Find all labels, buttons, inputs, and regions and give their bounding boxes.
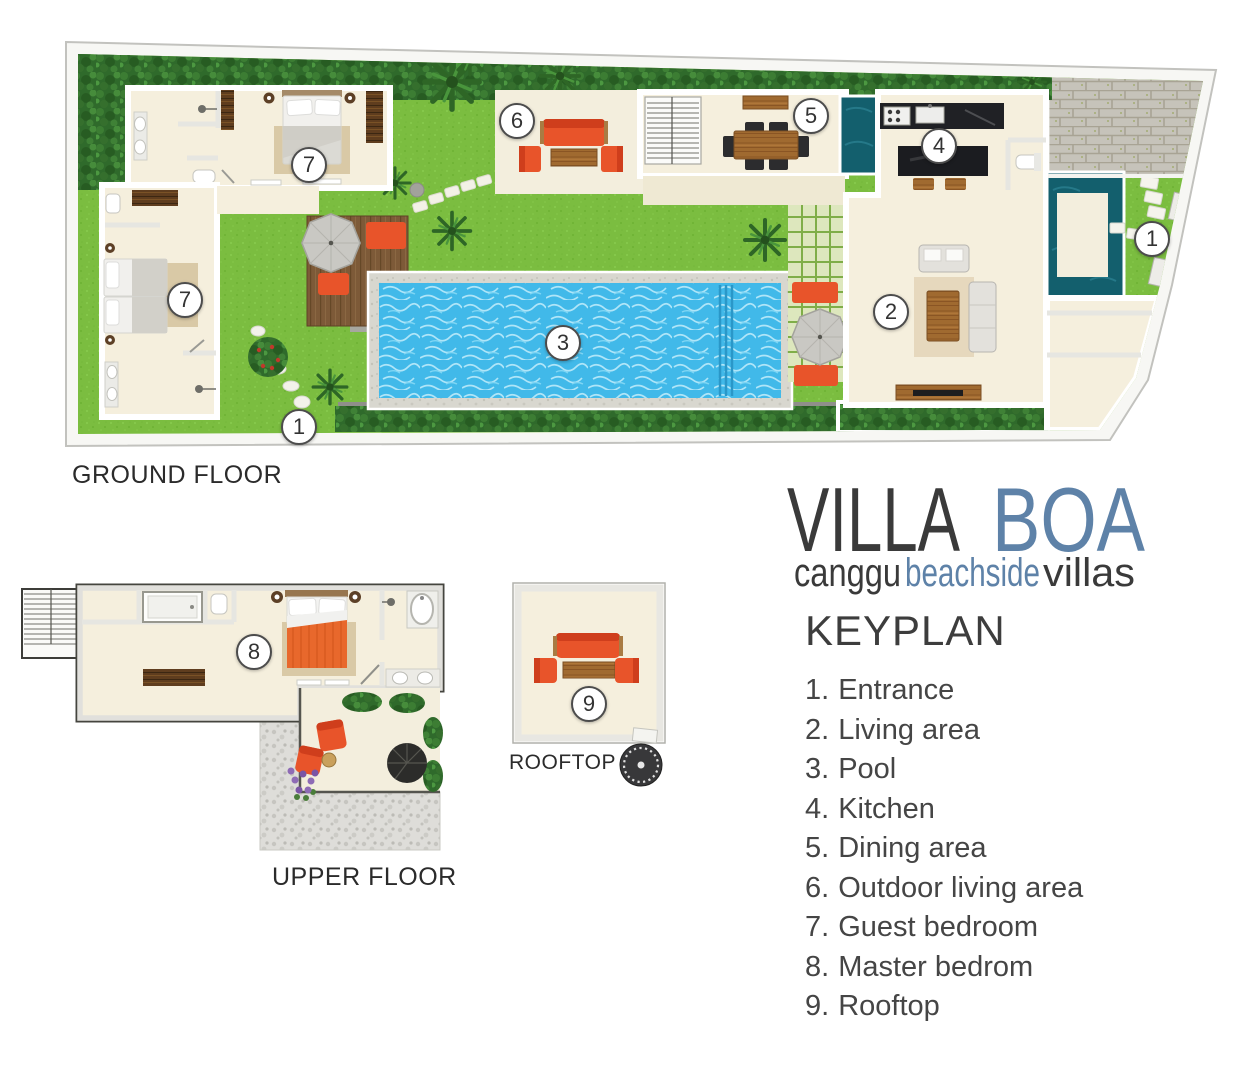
villa-boa-logo: VILLA BOA canggu beachside villas	[770, 478, 1150, 596]
sun-lounger-2	[794, 365, 838, 386]
pool-umbrella	[792, 309, 848, 365]
guest-bedroom-top	[128, 88, 390, 188]
sofa	[969, 282, 996, 352]
sun-lounger-area	[788, 202, 848, 386]
dining-terrace	[643, 176, 845, 205]
upper-floor-label: UPPER FLOOR	[272, 863, 457, 892]
entrance-platform	[1057, 193, 1108, 277]
keyplan-item-master-bedroom: 8.Master bedrom	[805, 948, 1083, 988]
ground-floor-label: GROUND FLOOR	[72, 461, 282, 490]
marker-entrance-bottom: 1	[281, 409, 317, 445]
keyplan-item-pool: 3.Pool	[805, 750, 1083, 790]
villa-floorplan-page: 1 1 2 3 4 5 6 7 7 8 9 GROUND FLOOR UPPER…	[0, 0, 1250, 1092]
bar-stool-2	[945, 178, 966, 190]
keyplan-item-entrance: 1.Entrance	[805, 671, 1083, 711]
logo-subtitle-villas: villas	[1043, 551, 1135, 595]
marker-kitchen: 4	[921, 128, 957, 164]
driveway-paving	[1048, 72, 1208, 176]
sun-lounger-1	[792, 282, 838, 303]
terrace-plants-1	[342, 692, 382, 712]
keyplan-item-kitchen: 4.Kitchen	[805, 790, 1083, 830]
deck-cushion	[318, 273, 349, 295]
keyplan-item-guest-bedroom: 7.Guest bedroom	[805, 908, 1083, 948]
deck-daybed	[366, 222, 406, 249]
marker-dining-area: 5	[793, 98, 829, 134]
marker-guest-bedroom-left: 7	[167, 282, 203, 318]
koi-pond	[840, 96, 878, 174]
bar-stool-1	[913, 178, 934, 190]
kitchen-sink	[916, 107, 944, 123]
upper-floor-plan	[22, 588, 443, 850]
marker-outdoor-living-area: 6	[499, 103, 535, 139]
keyplan-heading: KEYPLAN	[805, 607, 1083, 655]
rooftop-door	[632, 728, 657, 743]
hanging-chair	[387, 743, 427, 783]
marker-pool: 3	[545, 325, 581, 361]
spiral-staircase	[620, 744, 662, 786]
marker-rooftop: 9	[571, 686, 607, 722]
dining-console	[743, 96, 788, 109]
rooftop-table	[563, 662, 615, 678]
garden-statue	[410, 183, 424, 197]
corridor	[217, 186, 319, 214]
marker-master-bedroom: 8	[236, 634, 272, 670]
keyplan-item-rooftop: 9.Rooftop	[805, 987, 1083, 1027]
marker-living-area: 2	[873, 294, 909, 330]
outdoor-coffee-table	[551, 149, 597, 166]
tv	[913, 390, 963, 396]
deck-umbrella	[302, 214, 360, 272]
dining-table	[734, 131, 798, 159]
wardrobe	[143, 669, 205, 686]
living-coffee-table	[927, 291, 959, 341]
terrace-plants-2	[389, 693, 425, 713]
headboard	[285, 590, 348, 597]
stove	[884, 107, 910, 125]
keyplan-item-outdoor-living-area: 6.Outdoor living area	[805, 869, 1083, 909]
keyplan-item-living-area: 2.Living area	[805, 711, 1083, 751]
logo-subtitle-beachside: beachside	[905, 551, 1040, 595]
rooftop-label: ROOFTOP	[509, 751, 616, 775]
flowering-bush	[248, 337, 288, 377]
marker-guest-bedroom-top: 7	[291, 147, 327, 183]
marker-entrance-right: 1	[1134, 221, 1170, 257]
keyplan-item-dining-area: 5.Dining area	[805, 829, 1083, 869]
upper-terrace	[288, 688, 444, 801]
terrace-side-table	[322, 753, 336, 767]
logo-subtitle-canggu: canggu	[794, 551, 901, 595]
ground-floor-plan	[66, 41, 1216, 446]
wc	[211, 594, 227, 614]
staircase	[645, 97, 701, 164]
keyplan-legend: KEYPLAN 1.Entrance 2.Living area 3.Pool …	[805, 607, 1083, 1027]
terrace-plants-3	[423, 717, 443, 749]
left-hedge	[78, 54, 130, 190]
